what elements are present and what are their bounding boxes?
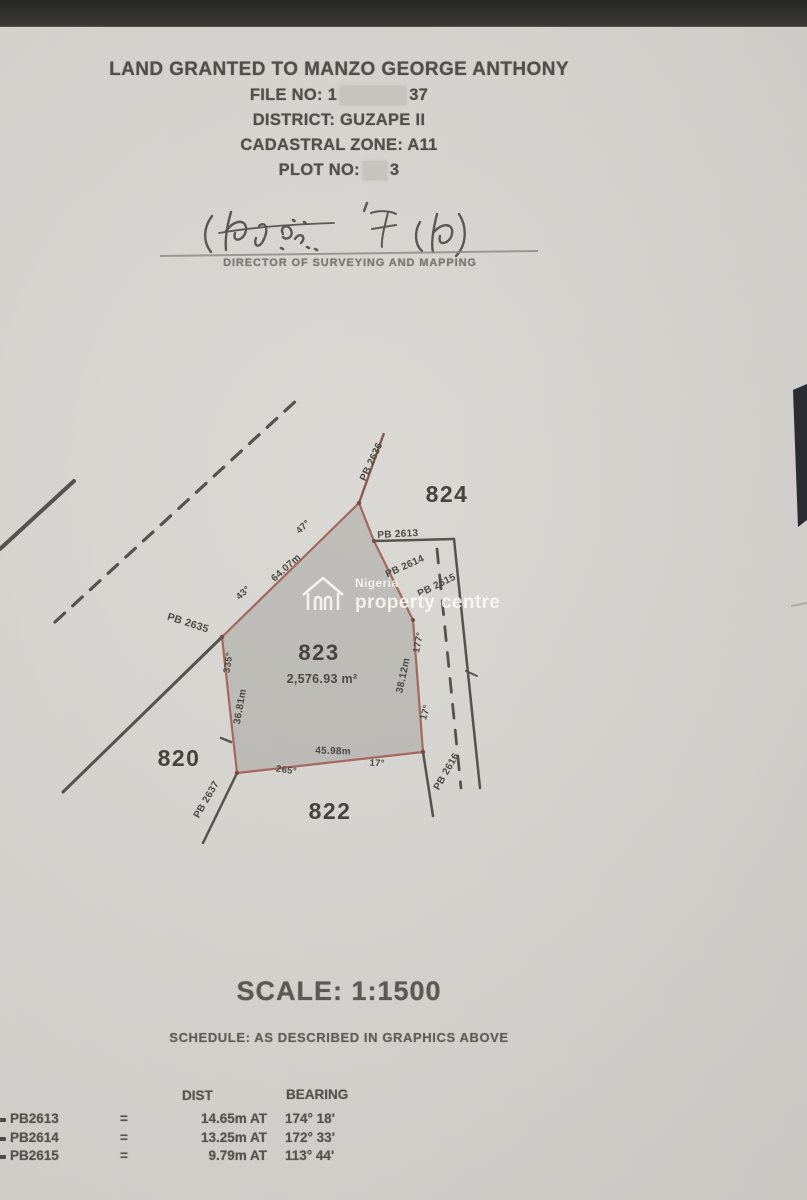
- map-label-822: 822: [309, 798, 352, 824]
- map-label-17-: 17°: [369, 758, 385, 770]
- map-label-823: 823: [298, 640, 339, 665]
- right-edge-faint-mark: [791, 603, 807, 606]
- signature-underline: [160, 251, 538, 256]
- signature-ink: [205, 203, 465, 256]
- map-label-45-98m: 45.98m: [315, 745, 351, 757]
- map-label-824: 824: [426, 481, 469, 507]
- boundary-dashed-line: [55, 399, 298, 622]
- map-label-pb-2636: PB 2636: [358, 441, 385, 483]
- map-label-47-: 47°: [294, 518, 313, 536]
- map-label-pb-2635: PB 2635: [166, 611, 211, 636]
- map-label-pb-2613: PB 2613: [377, 528, 419, 541]
- map-label-pb-2614: PB 2614: [384, 553, 426, 580]
- photo-dark-right-sliver: [793, 384, 807, 527]
- survey-map-drawing: 8248232,576.93 m²820822PB 2635PB 2636PB …: [0, 0, 807, 1200]
- left-edge-tick-mark: [221, 738, 231, 742]
- left-edge-survey-line: [0, 481, 74, 549]
- map-label-43-: 43°: [234, 584, 253, 602]
- map-label-pb-2616: PB 2616: [432, 751, 462, 792]
- right-road-solid-line: [454, 539, 480, 788]
- map-label-pb-2615: PB 2615: [416, 572, 458, 600]
- map-label-2-576-93-m-: 2,576.93 m²: [287, 672, 358, 686]
- boundary-continuation-se: [423, 752, 433, 816]
- plot-823-parcel: [222, 503, 423, 773]
- map-label-820: 820: [158, 745, 201, 771]
- scanned-survey-document: LAND GRANTED TO MANZO GEORGE ANTHONY FIL…: [0, 0, 807, 1200]
- map-label-265-: 265°: [275, 764, 297, 778]
